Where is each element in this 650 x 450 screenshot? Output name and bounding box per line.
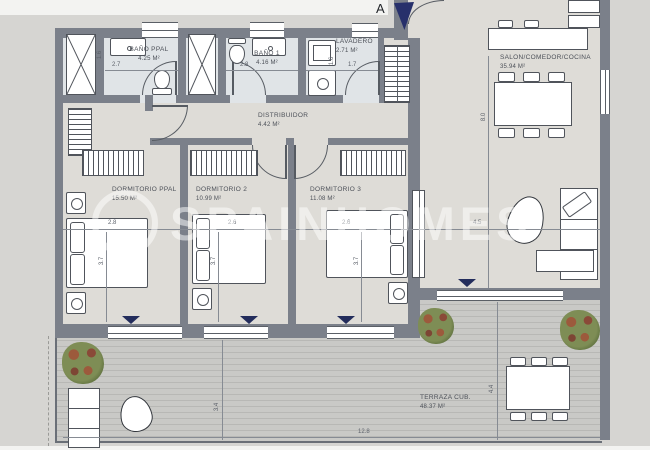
label-bano-ppal: BAÑO PPAL 4.25 m² [118,46,180,63]
wardrobe-dorm-ppal-icon [66,34,96,95]
room-area: 2.71 m² [336,47,384,55]
wall-bano1-lavadero [298,28,306,95]
wall-closet-bano-ppal [96,28,104,95]
window-lavadero [352,23,378,38]
dim-terrace-w: 12.8 [358,429,370,435]
label-lavadero: LAVADERO 2.71 m² [336,38,384,55]
page-margin-top [0,0,388,15]
label-dorm2: DORMITORIO 2 10.99 m² [196,186,268,203]
room-name: TERRAZA CUB. [420,394,490,403]
room-name: DORMITORIO PPAL [112,186,192,195]
terrace-door-salon [437,290,563,301]
terrace-edge-left [55,338,57,442]
room-area: 48.37 m² [420,403,490,411]
dining-chair-top-2 [523,72,540,82]
dim-line-dorm3-v [361,232,362,322]
sun-lounger [68,388,100,448]
terrace-door-dorm-ppal [108,326,182,339]
kitchen-appliance-1 [568,0,600,13]
dim-salon-w: 4.5 [473,220,481,226]
window-bano-ppal [142,22,178,38]
dining-chair-bottom-1 [498,128,515,138]
dim-dorm-ppal-w: 2.8 [108,220,116,226]
room-name: DISTRIBUIDOR [258,112,330,121]
terrace-chair-top-3 [552,357,568,366]
nightstand-dorm2 [192,288,212,310]
room-area: 11.08 m² [310,195,382,203]
bed-dorm3 [326,210,408,278]
tv-sideboard [412,190,425,278]
door-leaf-dorm2 [285,145,287,179]
wall-closet2-bano1 [218,28,226,95]
bar-stool-2 [524,20,539,28]
room-name: SALON/COMEDOR/COCINA [500,54,600,63]
dim-dorm-ppal-d: 3.7 [99,257,105,265]
dim-line-dorm-ppal-v [106,232,107,322]
door-leaf-dorm-ppal [152,105,188,107]
dining-chair-top-3 [548,72,565,82]
room-name: LAVADERO [336,38,384,47]
label-distribuidor: DISTRIBUIDOR 4.42 m² [258,112,330,129]
dining-chair-top-1 [498,72,515,82]
dim-line-main-chain [63,229,600,230]
dim-line-salon-v [488,56,489,288]
window-marker-dorm3 [337,316,355,324]
plant-terrace-left-icon [62,342,104,384]
door-gap-lavadero [343,95,379,103]
room-name: BAÑO 1 [238,50,296,59]
wall-right [600,0,610,440]
bar-stool-1 [498,20,513,28]
window-marker-salon [458,279,476,287]
coffee-table [536,250,594,272]
room-name: DORMITORIO 2 [196,186,268,195]
dim-terrace-left-d: 3.4 [214,403,220,411]
dorm-ppal-shelves [68,108,92,156]
window-bano1 [250,22,284,38]
room-name: DORMITORIO 3 [310,186,382,195]
dim-line-lavadero [306,70,378,71]
wardrobe-hall-icon [188,34,216,95]
dim-dorm2-w: 2.6 [228,220,236,226]
dryer-lavadero [308,70,336,96]
room-name: BAÑO PPAL [118,46,180,55]
dim-bano-ppal-w: 2.7 [112,62,120,68]
terrace-door-dorm3 [327,326,394,339]
dim-dorm2-d: 3.7 [211,257,217,265]
room-area: 4.42 m² [258,121,330,129]
room-area: 4.25 m² [118,55,180,63]
terrace-chair-top-2 [531,357,547,366]
dim-salon-d: 8.0 [481,113,487,121]
plant-terrace-right-icon [560,310,600,350]
terrace-table [506,366,570,410]
dim-line-bano1 [226,70,298,71]
door-gap-bano1 [230,95,266,103]
nightstand-dorm3 [388,282,408,304]
wall-dormppal-dorm2 [180,145,188,324]
window-marker-dorm-ppal [122,316,140,324]
terrace-door-dorm2 [204,326,268,339]
door-leaf-lavadero [378,61,380,95]
floor-plan: A [0,0,650,450]
label-salon: SALON/COMEDOR/COCINA 35.94 m² [500,54,600,71]
terrace-chair-top-1 [510,357,526,366]
dining-chair-bottom-2 [523,128,540,138]
dim-lavadero-w: 1.7 [348,62,356,68]
label-terraza: TERRAZA CUB. 48.37 m² [420,394,490,411]
dim-line-terrace-right-v [497,302,498,440]
dim-line-bano-ppal [105,70,178,71]
kitchen-counter [488,28,588,50]
dim-dorm3-w: 2.6 [342,220,350,226]
terrace-edge-bottom [55,441,602,443]
room-area: 15.50 m² [112,195,192,203]
dim-dorm3-d: 3.7 [354,257,360,265]
room-area: 4.16 m² [238,59,296,67]
door-leaf-dorm3 [294,145,296,179]
nightstand-dorm-ppal-1 [66,192,86,214]
door-gap-dorm2 [252,138,286,145]
terrace-chair-bottom-1 [510,412,526,421]
window-marker-dorm2 [240,316,258,324]
dim-line-terrace-left-v [222,340,223,440]
nightstand-dorm-ppal-2 [66,292,86,314]
terrace-chair-bottom-3 [552,412,568,421]
label-dorm-ppal: DORMITORIO PPAL 15.50 m² [112,186,192,203]
terrace-chair-bottom-2 [531,412,547,421]
toilet-tank-bano1 [228,38,246,44]
room-area: 35.94 m² [500,63,600,71]
label-dorm3: DORMITORIO 3 11.08 m² [310,186,382,203]
door-gap-dorm3 [294,138,328,145]
wall-left [55,28,63,338]
wardrobe-dorm3 [340,150,406,176]
door-leaf-bano1 [232,61,234,95]
plant-terrace-mid-icon [418,308,454,344]
dim-line-dorm2-v [218,232,219,322]
hall-closet-shelves [384,45,410,103]
door-leaf-bano-ppal [175,61,177,95]
window-salon-right [600,70,610,114]
room-area: 10.99 m² [196,195,268,203]
toilet-bowl-bano-ppal [154,70,170,89]
section-marker-label: A [376,1,385,16]
kitchen-appliance-2 [568,15,600,28]
wardrobe-dorm2 [190,150,258,176]
terrace-dashed-boundary-left [48,336,49,446]
dim-line-terrace-bottom [63,437,600,438]
dim-terrace-right-d: 4.4 [489,385,495,393]
toilet-tank-bano-ppal [152,88,172,95]
dim-lavadero-d: 1.6 [329,57,335,65]
dining-chair-bottom-3 [548,128,565,138]
dim-bano-ppal-d: 1.6 [97,51,103,59]
label-bano1: BAÑO 1 4.16 m² [238,50,296,67]
dining-table [494,82,572,126]
wardrobe-dorm-ppal-2 [82,150,144,176]
